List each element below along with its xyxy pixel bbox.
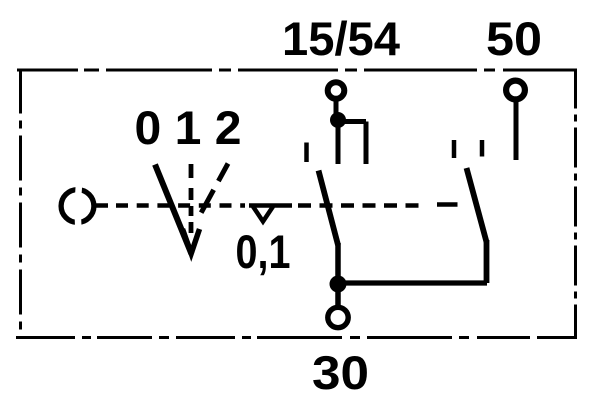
svg-text:30: 30 [312, 347, 369, 400]
svg-text:0 1 2: 0 1 2 [135, 102, 242, 155]
svg-text:15/54: 15/54 [282, 13, 401, 66]
svg-text:0,1: 0,1 [236, 226, 291, 279]
svg-text:50: 50 [486, 13, 542, 66]
